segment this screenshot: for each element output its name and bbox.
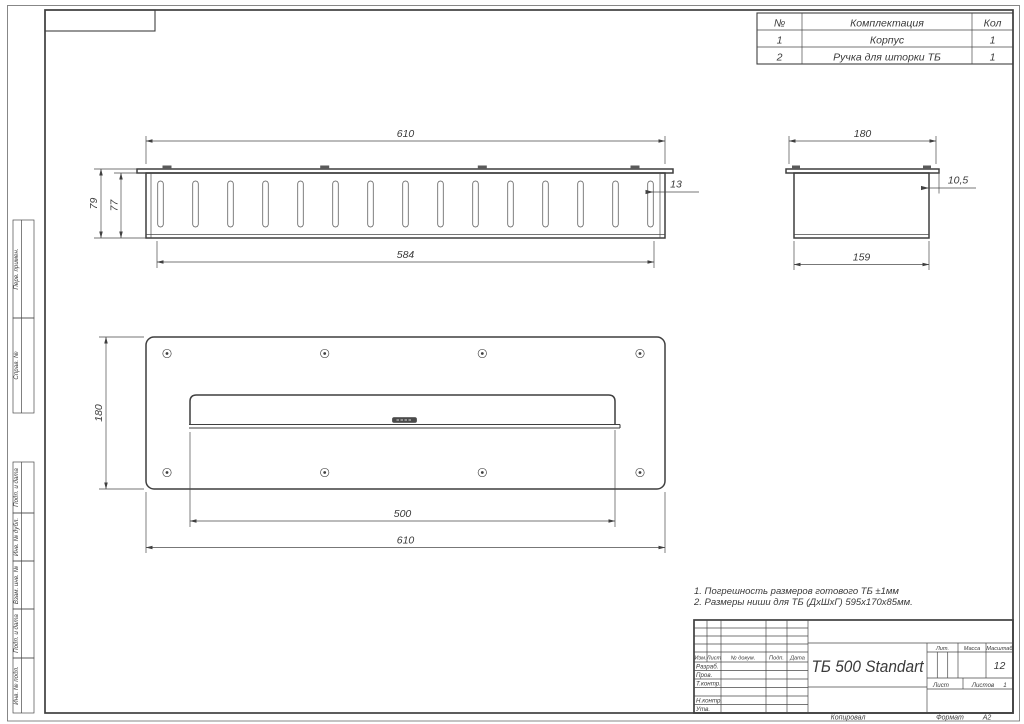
margin-column: Перв. примен. Справ. № Подп. и дата Инв.… — [13, 220, 34, 713]
technical-notes: 1. Погрешность размеров готового ТБ ±1мм… — [693, 586, 913, 608]
parts-row-1-name: Корпус — [870, 35, 905, 47]
row-label-prov: Пров. — [696, 672, 712, 679]
mounting-holes — [163, 349, 644, 476]
scale-value: 12 — [994, 660, 1006, 672]
parts-row-1-no: 1 — [777, 35, 783, 47]
front-panel — [146, 337, 665, 489]
parts-table: № Комплектация Кол 1 Корпус 1 2 Ручка дл… — [757, 13, 1013, 64]
dim-front-height: 180 — [93, 404, 105, 422]
drawing-sheet: Перв. примен. Справ. № Подп. и дата Инв.… — [0, 0, 1024, 724]
parts-table-row: 1 Корпус 1 — [777, 35, 996, 47]
stamp-box — [45, 10, 155, 31]
col-header-list: Лист — [706, 655, 722, 661]
margin-label-sprav-no: Справ. № — [13, 351, 20, 379]
listov-label: Листов — [971, 682, 995, 689]
side-view-body — [794, 173, 929, 238]
dim-side-flange: 10,5 — [948, 175, 969, 187]
format-value: А2 — [982, 715, 992, 722]
row-label-nkontr: Н.контр. — [696, 698, 722, 705]
dim-top-width: 610 — [397, 128, 415, 140]
margin-label-inv-dubl: Инв. № дубл. — [13, 518, 20, 556]
shutter-handle — [393, 418, 417, 423]
parts-row-2-name: Ручка для шторки ТБ — [833, 52, 941, 64]
parts-table-row: 2 Ручка для шторки ТБ 1 — [776, 52, 996, 64]
dim-side-width: 180 — [854, 128, 872, 140]
col-header-izm: Изм. — [695, 655, 707, 661]
parts-row-2-qty: 1 — [990, 52, 996, 64]
vent-slots — [158, 181, 654, 227]
kopiroval-label: Копировал — [831, 715, 866, 722]
parts-row-1-qty: 1 — [990, 35, 996, 47]
row-label-razrab: Разраб. — [696, 664, 718, 671]
col-header-podp: Подп. — [769, 655, 784, 661]
dim-top-edge: 13 — [670, 179, 682, 191]
row-label-tkontr: Т.контр. — [696, 681, 721, 688]
margin-label-podp-data-2: Подп. и дата — [13, 614, 20, 653]
parts-header-name: Комплектация — [850, 18, 924, 30]
sheet-outer-border — [8, 6, 1020, 722]
lit-header: Лит. — [935, 646, 949, 652]
top-view-body — [146, 173, 665, 238]
document-title: ТБ 500 Standart — [812, 657, 925, 676]
margin-label-inv-podl: Инв. № подл. — [13, 666, 20, 704]
margin-label-vzam-inv: Взам. инв. № — [13, 566, 20, 605]
listov-value: 1 — [1003, 682, 1006, 689]
row-label-utv: Утв. — [695, 706, 710, 713]
col-header-data: Дата — [789, 655, 805, 661]
dim-top-height-outer: 79 — [88, 198, 100, 210]
margin-label-podp-data-1: Подп. и дата — [13, 468, 20, 507]
shutter-edge — [189, 425, 620, 429]
parts-row-2-no: 2 — [776, 52, 783, 64]
dim-top-height-inner: 77 — [109, 199, 121, 212]
margin-label-perv-primen: Перв. примен. — [13, 248, 20, 289]
title-block: Изм. Лист № докум. Подп. Дата Разраб. Пр… — [694, 620, 1013, 713]
note-line-2: 2. Размеры ниши для ТБ (ДхШхГ) 595х170х8… — [693, 597, 913, 608]
sheet-footer: Копировал Формат А2 — [831, 715, 992, 722]
parts-header-no: № — [774, 18, 785, 30]
list-label: Лист — [932, 682, 949, 689]
dim-front-slot: 500 — [394, 508, 412, 520]
top-view: 610 79 77 584 13 — [88, 128, 699, 268]
col-header-doc: № докум. — [731, 655, 756, 661]
parts-header-qty: Кол — [984, 18, 1002, 30]
dim-side-body: 159 — [853, 252, 871, 264]
format-label: Формат — [936, 715, 964, 722]
masshtab-header: Масштаб — [986, 646, 1013, 652]
note-line-1: 1. Погрешность размеров готового ТБ ±1мм — [694, 586, 899, 597]
front-view: 180 500 610 — [93, 337, 665, 553]
dim-front-width: 610 — [397, 535, 415, 547]
side-view: 180 10,5 159 — [786, 128, 976, 270]
dim-top-inner-width: 584 — [397, 249, 415, 261]
massa-header: Масса — [964, 646, 981, 652]
